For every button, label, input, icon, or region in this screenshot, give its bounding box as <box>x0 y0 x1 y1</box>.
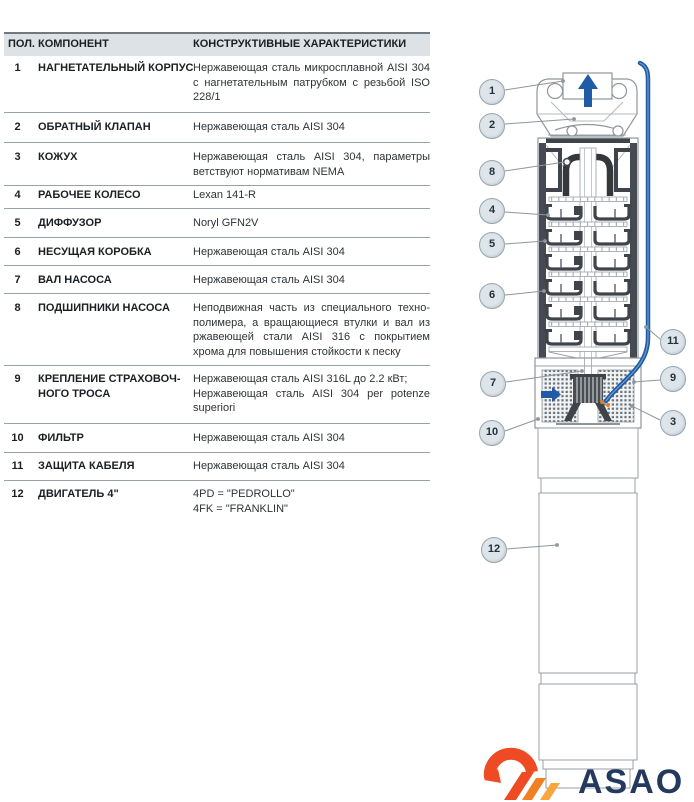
row-divider <box>4 365 430 366</box>
callout-6: 6 <box>479 283 505 309</box>
row-number: 2 <box>4 120 31 135</box>
row-divider <box>4 452 430 453</box>
row-number: 4 <box>4 188 31 203</box>
component-spec: Нержавеющая сталь AISI 316L до 2.2 кВт; … <box>193 372 430 416</box>
callout-9: 9 <box>660 366 686 392</box>
callout-10: 10 <box>479 420 505 446</box>
component-spec: Нержавеющая сталь AISI 304 <box>193 273 430 288</box>
header-component: КОМПОНЕНТ <box>38 38 109 50</box>
table-header: ПОЛ. КОМПОНЕНТ КОНСТРУКТИВНЫЕ ХАРАКТЕРИС… <box>4 32 430 56</box>
callout-7: 7 <box>480 371 506 397</box>
callout-2: 2 <box>479 113 505 139</box>
callout-4: 4 <box>479 198 505 224</box>
row-number: 10 <box>4 431 31 446</box>
component-name: КОЖУХ <box>38 150 190 165</box>
callout-1: 1 <box>479 79 505 105</box>
row-number: 3 <box>4 150 31 165</box>
component-name: ЗАЩИТА КАБЕЛЯ <box>38 459 190 474</box>
header-characteristics: КОНСТРУКТИВНЫЕ ХАРАКТЕРИСТИКИ <box>193 38 406 50</box>
callout-8: 8 <box>479 160 505 186</box>
component-spec: Нержавеющая сталь AISI 304 <box>193 431 430 446</box>
component-name: ВАЛ НАСОСА <box>38 273 190 288</box>
header-pos: ПОЛ. <box>8 38 35 50</box>
component-name: НАГНЕТАТЕЛЬНЫЙ КОРПУС <box>38 61 190 76</box>
row-divider <box>4 480 430 481</box>
callout-12: 12 <box>481 537 507 563</box>
component-name: ДВИГАТЕЛЬ 4" <box>38 487 190 502</box>
row-divider <box>4 185 430 186</box>
component-name: ОБРАТНЫЙ КЛАПАН <box>38 120 190 135</box>
row-number: 8 <box>4 301 31 316</box>
row-divider <box>4 142 430 143</box>
row-divider <box>4 293 430 294</box>
row-number: 11 <box>4 459 31 474</box>
row-divider <box>4 265 430 266</box>
component-name: НЕСУЩАЯ КОРОБКА <box>38 245 190 260</box>
component-spec: Нержавеющая сталь AISI 304 <box>193 245 430 260</box>
component-name: ПОДШИПНИКИ НАСОСА <box>38 301 190 316</box>
callout-5: 5 <box>479 232 505 258</box>
component-spec: Нержавеющая сталь AISI 304, параметры со… <box>193 150 430 179</box>
row-number: 6 <box>4 245 31 260</box>
component-name: ДИФФУЗОР <box>38 216 190 231</box>
row-number: 12 <box>4 487 31 502</box>
brand-logo-text: ASAO <box>578 763 684 802</box>
component-spec: Нержавеющая сталь AISI 304 <box>193 120 430 135</box>
row-number: 1 <box>4 61 31 76</box>
component-spec: Нержавеющая сталь AISI 304 <box>193 459 430 474</box>
row-divider <box>4 112 430 113</box>
component-name: ФИЛЬТР <box>38 431 190 446</box>
pump-outline <box>535 73 641 788</box>
row-number: 7 <box>4 273 31 288</box>
component-spec: 4PD = "PEDROLLO" 4FK = "FRANKLIN" <box>193 487 430 516</box>
row-divider <box>4 423 430 424</box>
row-number: 9 <box>4 372 31 387</box>
component-spec: Неподвижная часть из специального техно-… <box>193 301 430 359</box>
component-spec: Нержавеющая сталь микросплавной AISI 304… <box>193 61 430 105</box>
callout-3: 3 <box>660 410 686 436</box>
row-divider <box>4 237 430 238</box>
row-divider <box>4 208 430 209</box>
callout-11: 11 <box>660 329 686 355</box>
component-spec: Noryl GFN2V <box>193 216 430 231</box>
component-spec: Lexan 141-R <box>193 188 430 203</box>
component-name: РАБОЧЕЕ КОЛЕСО <box>38 188 190 203</box>
row-number: 5 <box>4 216 31 231</box>
component-name: КРЕПЛЕНИЕ СТРАХОВОЧ- НОГО ТРОСА <box>38 372 190 401</box>
catalog-page: { "table": { "headers": { "pos": "ПОЛ.",… <box>0 0 694 800</box>
